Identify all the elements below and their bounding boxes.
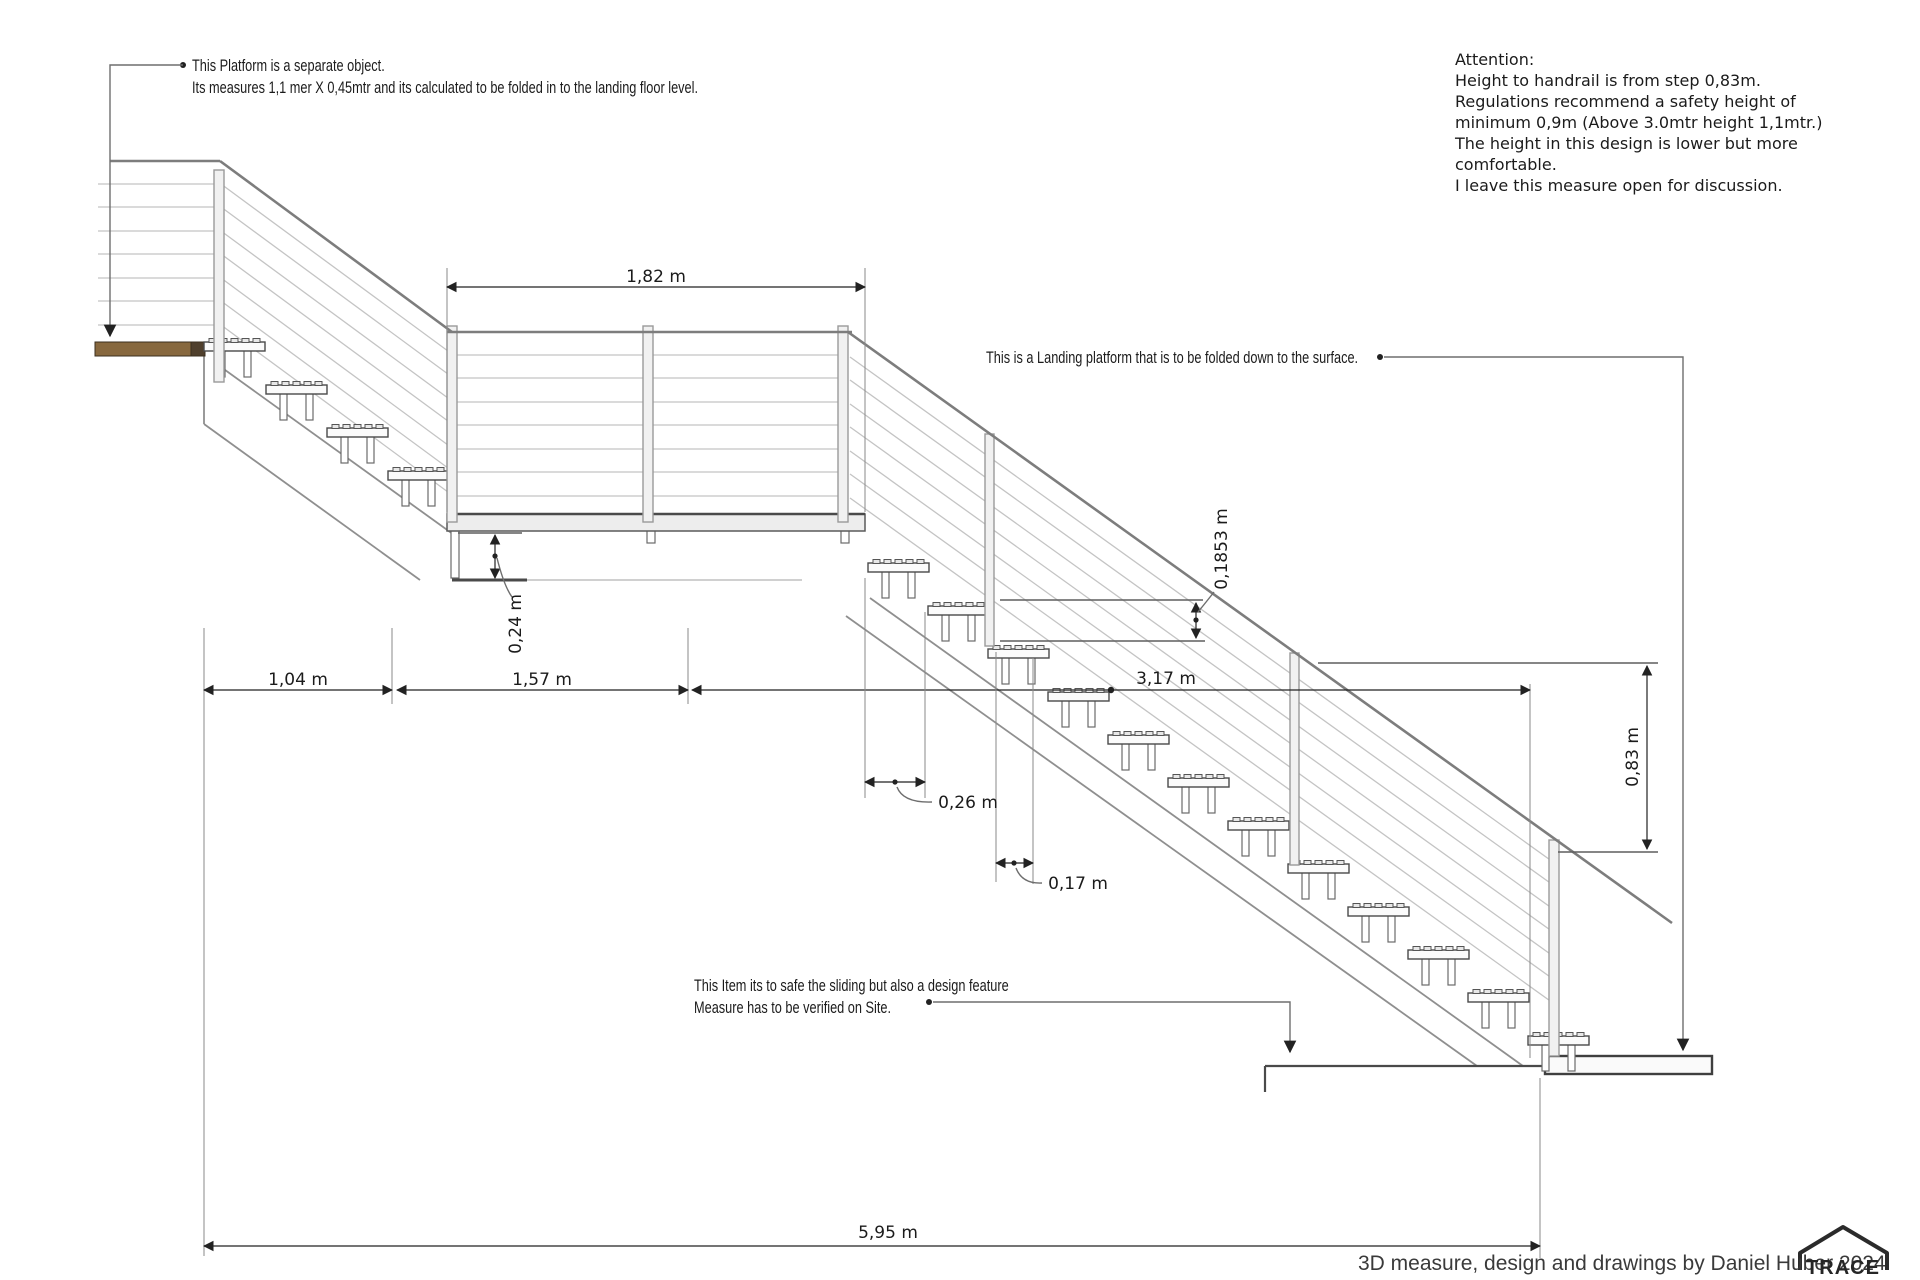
railing-posts [214,170,1559,1056]
dim-mid-run-label: 1,57 m [512,670,572,690]
upper-flight-steps [204,339,449,507]
trace-logo-text: TRACE [1806,1257,1880,1280]
dim-lower-run-label: 3,17 m [1136,669,1196,689]
attention-line: minimum 0,9m (Above 3.0mtr height 1,1mtr… [1455,112,1822,133]
sliding-note-line1: This Item its to safe the sliding but al… [694,975,1009,997]
attention-line: comfortable. [1455,154,1822,175]
platform-note-line1: This Platform is a separate object. [192,55,698,77]
dimension-lines [204,268,1658,1258]
dim-riser-height-label: 0,1853 m [1212,508,1232,589]
attention-line: Regulations recommend a safety height of [1455,91,1822,112]
stringers [204,356,1523,1066]
sliding-note-line2: Measure has to be verified on Site. [694,997,1009,1019]
attention-note: Attention: Height to handrail is from st… [1455,49,1822,196]
wood-platform [95,342,205,356]
attention-line: The height in this design is lower but m… [1455,133,1822,154]
technical-drawing-page: { "annotations": { "platform_note": { "l… [0,0,1920,1270]
landing-platform [447,514,865,580]
attention-line: Attention: [1455,49,1822,70]
dim-total-run-label: 5,95 m [858,1223,918,1243]
sliding-note: This Item its to safe the sliding but al… [694,975,1009,1019]
dim-nose-offset-label: 0,17 m [1048,874,1108,894]
attention-line: I leave this measure open for discussion… [1455,175,1822,196]
dim-gap-under-landing-label: 0,24 m [506,594,526,654]
landing-note: This is a Landing platform that is to be… [986,347,1358,369]
dim-tread-depth-label: 0,26 m [938,793,998,813]
ground [1265,1056,1712,1092]
dim-landing-width-label: 1,82 m [626,267,686,287]
dim-handrail-height-label: 0,83 m [1623,727,1643,787]
platform-note: This Platform is a separate object. Its … [192,55,698,99]
platform-note-line2: Its measures 1,1 mer X 0,45mtr and its c… [192,77,698,99]
dim-upper-run-label: 1,04 m [268,670,328,690]
attention-line: Height to handrail is from step 0,83m. [1455,70,1822,91]
